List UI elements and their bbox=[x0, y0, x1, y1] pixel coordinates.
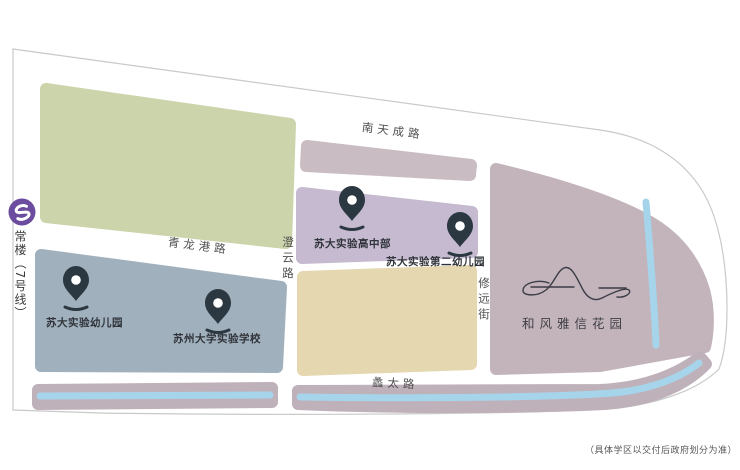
road-label-litai: 蠡太路 bbox=[372, 374, 419, 392]
school-label-soochow-univ-school: 苏州大学实验学校 bbox=[173, 331, 261, 346]
river-strip-left bbox=[40, 395, 270, 396]
road-label-xiuyuan: 修远街 bbox=[476, 277, 492, 324]
parcel-project-site bbox=[496, 169, 708, 369]
map-canvas bbox=[0, 0, 740, 470]
parcel-mauve-upper bbox=[306, 146, 471, 175]
parcel-green bbox=[46, 89, 290, 243]
school-label-suda-kindergarten: 苏大实验幼儿园 bbox=[46, 315, 123, 330]
project-name: 和风雅信花园 bbox=[522, 313, 627, 332]
suzhou-metro-icon bbox=[9, 199, 36, 226]
school-label-suda-second-kindergarten: 苏大实验第二幼儿园 bbox=[386, 254, 485, 269]
school-label-suda-highschool: 苏大实验高中部 bbox=[314, 236, 391, 251]
disclaimer-text: （具体学区以交付后政府划分为准） bbox=[585, 443, 737, 456]
road-label-chengyun: 澄云路 bbox=[280, 236, 296, 283]
school-district-map: 南天成路 青龙港路 澄云路 修远街 蠡太路 常楼（7号线） 苏大实验幼儿园 苏州… bbox=[0, 0, 740, 470]
parcel-tan bbox=[303, 271, 471, 370]
metro-station-label: 常楼（7号线） bbox=[12, 230, 29, 320]
